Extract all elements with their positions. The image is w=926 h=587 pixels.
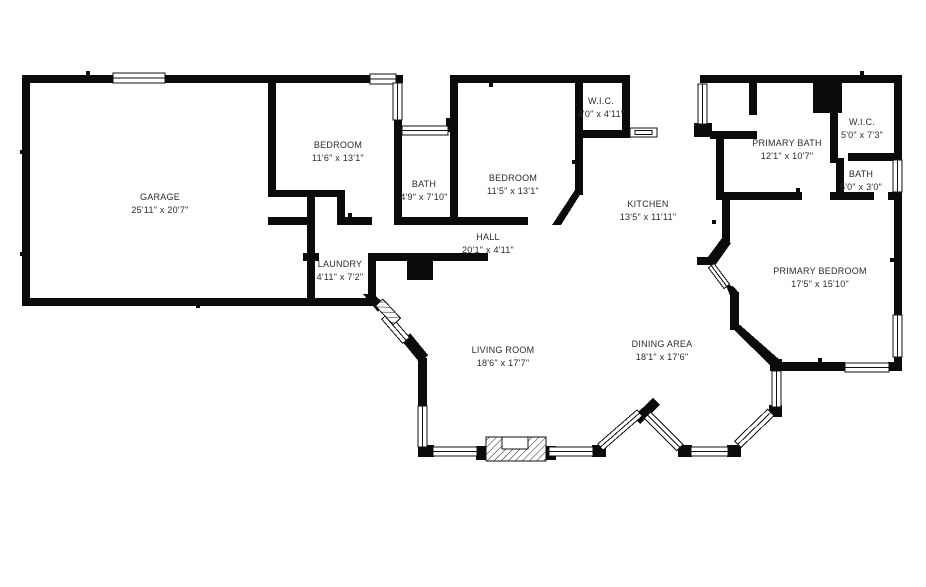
window [845, 363, 889, 372]
door [708, 264, 729, 289]
wall [775, 362, 845, 371]
chimney [813, 80, 842, 113]
room-dimensions: 17'5" x 15'10" [773, 278, 866, 291]
wall [402, 217, 450, 225]
wall [716, 192, 802, 200]
room-name: W.I.C. [841, 116, 883, 129]
room-dimensions: 18'6" x 17'7" [472, 357, 535, 370]
wall [394, 118, 402, 225]
room-label-laundry: LAUNDRY 4'11" x 7'2" [317, 258, 364, 283]
wall [830, 110, 838, 163]
room-label-garage: GARAGE 25'11" x 20'7" [131, 191, 188, 216]
room-name: PRIMARY BATH [752, 137, 822, 150]
wall [697, 257, 712, 265]
room-label-primary-bath: PRIMARY BATH 12'1" x 10'7" [752, 137, 822, 162]
utility-box [407, 256, 433, 280]
room-name: HALL [462, 231, 514, 244]
room-label-kitchen: KITCHEN 13'5" x 11'11" [620, 198, 677, 223]
room-dimensions: 13'5" x 11'11" [620, 211, 677, 224]
room-label-wic-1: W.I.C. 4'0" x 4'11" [578, 95, 625, 120]
wall [749, 83, 757, 115]
room-dimensions: 11'5" x 13'1" [487, 185, 539, 198]
room-name: LAUNDRY [317, 258, 364, 271]
room-name: GARAGE [131, 191, 188, 204]
room-label-living-room: LIVING ROOM 18'6" x 17'7" [472, 344, 535, 369]
wall [730, 292, 739, 330]
room-dimensions: 5'0" x 7'3" [841, 129, 883, 142]
room-dimensions: 18'1" x 17'6" [632, 351, 693, 364]
wall [418, 358, 427, 408]
room-label-bedroom-1: BEDROOM 11'6" x 13'1" [312, 139, 364, 164]
room-dimensions: 4'9" x 7'10" [400, 191, 447, 204]
wall [710, 131, 757, 139]
doors-layer [375, 128, 729, 325]
room-dimensions: 25'11" x 20'7" [131, 204, 188, 217]
wall [268, 190, 345, 197]
window [691, 447, 728, 456]
wall [770, 359, 782, 371]
room-label-bath-2: BATH 5'0" x 3'0" [840, 168, 882, 193]
floorplan-graphic [0, 0, 926, 587]
room-name: PRIMARY BEDROOM [773, 265, 866, 278]
wall [700, 75, 902, 83]
window [644, 412, 683, 451]
room-dimensions: 5'0" x 3'0" [840, 181, 882, 194]
room-dimensions: 20'1" x 4'11" [462, 244, 514, 257]
room-dimensions: 4'11" x 7'2" [317, 271, 364, 284]
room-name: LIVING ROOM [472, 344, 535, 357]
wall [716, 138, 724, 194]
wall [268, 217, 313, 225]
room-name: BEDROOM [312, 139, 364, 152]
room-label-primary-bedroom: PRIMARY BEDROOM 17'5" x 15'10" [773, 265, 866, 290]
window [433, 447, 477, 456]
window [735, 409, 774, 447]
room-label-bedroom-2: BEDROOM 11'5" x 13'1" [487, 172, 539, 197]
window [772, 371, 781, 407]
floorplan-canvas: GARAGE 25'11" x 20'7" BEDROOM 11'6" x 13… [0, 0, 926, 587]
room-name: BATH [840, 168, 882, 181]
room-label-dining-area: DINING AREA 18'1" x 17'6" [632, 338, 693, 363]
wall [450, 75, 630, 83]
wall [307, 190, 315, 306]
wall [22, 75, 403, 83]
window [402, 126, 448, 135]
window [393, 83, 402, 120]
wall [268, 83, 276, 193]
wall [458, 217, 528, 225]
wall [830, 192, 874, 200]
room-dimensions: 4'0" x 4'11" [578, 108, 625, 121]
fireplace [486, 437, 546, 461]
wall [450, 83, 458, 225]
wall [343, 217, 372, 225]
room-label-bath-1: BATH 4'9" x 7'10" [400, 178, 447, 203]
wall [722, 200, 730, 242]
wall [694, 123, 712, 137]
room-name: DINING AREA [632, 338, 693, 351]
window [698, 84, 707, 124]
room-name: KITCHEN [620, 198, 677, 211]
room-label-hall: HALL 20'1" x 4'11" [462, 231, 514, 256]
wall [22, 75, 30, 306]
wall [727, 445, 741, 457]
room-name: BATH [400, 178, 447, 191]
window [598, 410, 642, 450]
room-dimensions: 11'6" x 13'1" [312, 152, 364, 165]
window [418, 406, 427, 447]
room-name: W.I.C. [578, 95, 625, 108]
window [370, 74, 396, 84]
window [893, 160, 902, 192]
room-dimensions: 12'1" x 10'7" [752, 150, 822, 163]
pocket-door [630, 128, 657, 137]
wall [552, 190, 583, 225]
window [893, 315, 902, 357]
room-label-wic-2: W.I.C. 5'0" x 7'3" [841, 116, 883, 141]
window [549, 447, 593, 456]
walls-layer [22, 75, 902, 460]
wall [894, 195, 902, 317]
wall [575, 130, 630, 138]
room-name: BEDROOM [487, 172, 539, 185]
window [113, 73, 165, 83]
